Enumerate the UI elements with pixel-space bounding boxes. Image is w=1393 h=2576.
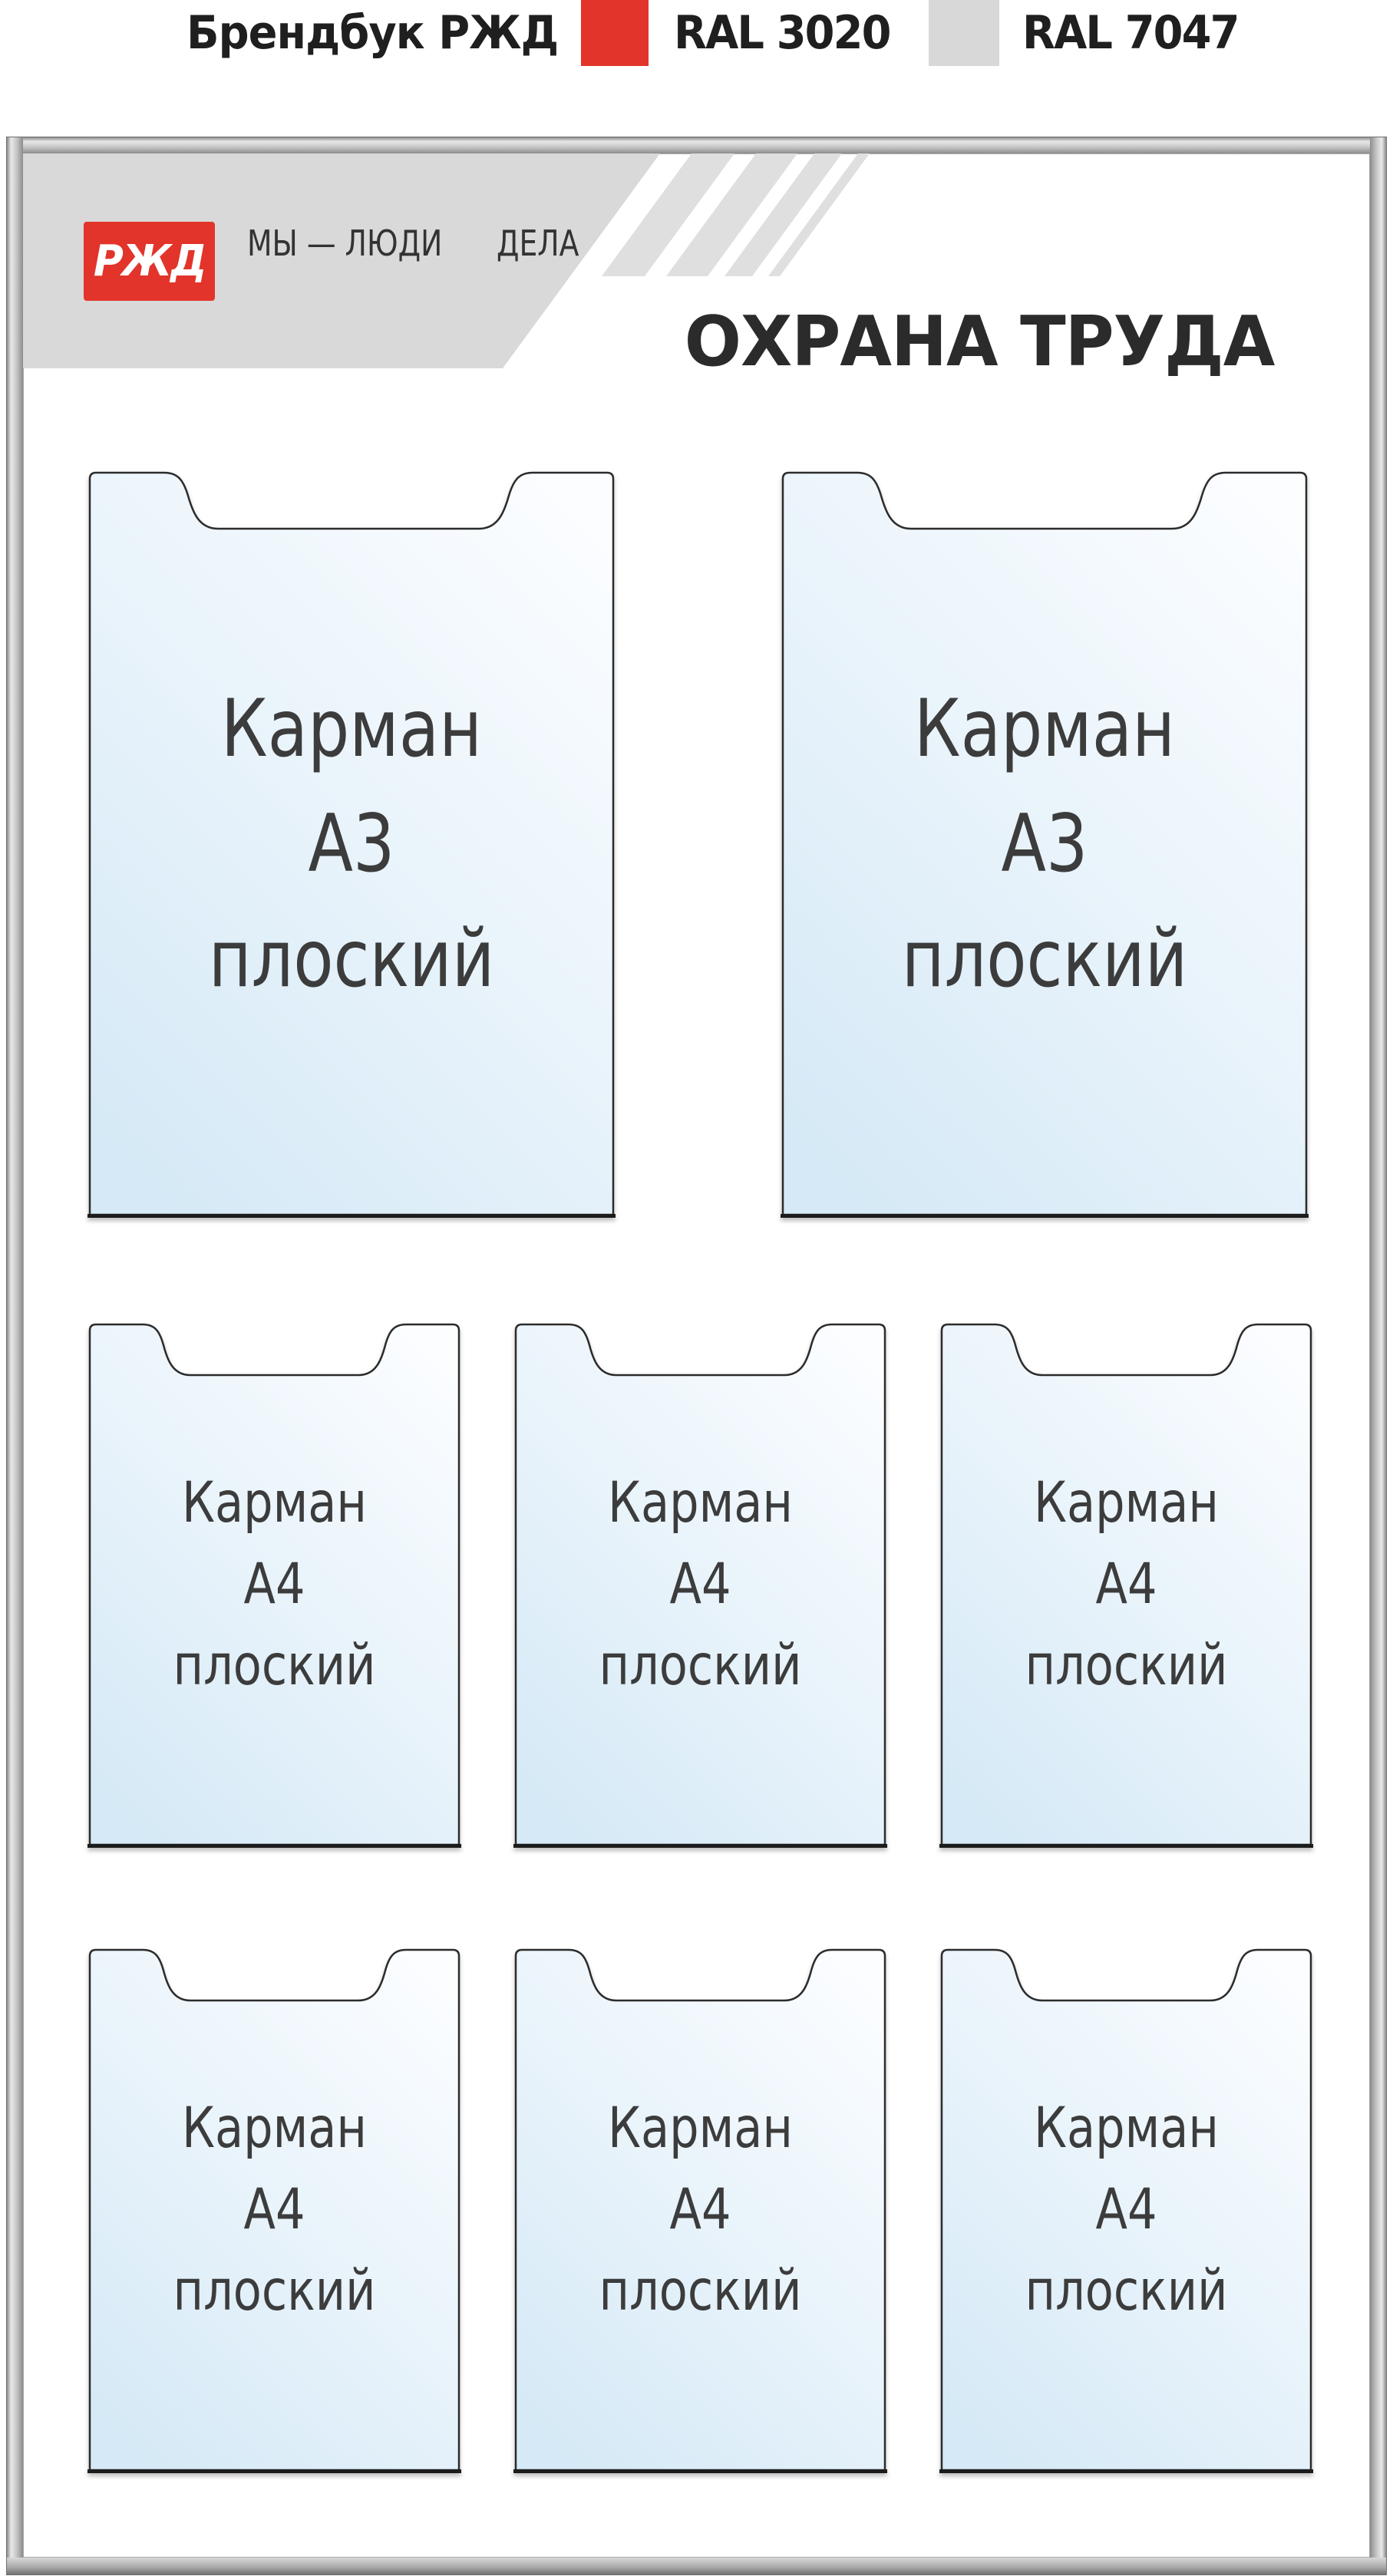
pocket-a4-label-line2: А4: [119, 1544, 429, 1625]
pocket-a3-1: Карман А3 плоский: [87, 470, 616, 1218]
frame-left-edge: [6, 137, 23, 2575]
pocket-a4-label-line2: А4: [119, 2169, 429, 2251]
rzd-logo: РЖД: [84, 222, 215, 301]
pocket-a4-label-line3: плоский: [119, 1625, 429, 1707]
slogan-line-1: МЫ — ЛЮДИ: [247, 225, 442, 262]
pocket-a3-label-line1: Карман: [825, 671, 1263, 787]
pocket-a4-label: Карман А4 плоский: [513, 2088, 887, 2332]
slogan: МЫ — ЛЮДИ ДЕЛА: [247, 225, 597, 262]
slogan-line-2: ДЕЛА: [497, 225, 579, 262]
pocket-a4-label: Карман А4 плоский: [939, 1463, 1313, 1707]
pocket-a4-label-line1: Карман: [545, 2088, 855, 2169]
pocket-a4-label-line3: плоский: [119, 2251, 429, 2332]
pocket-a3-2: Карман А3 плоский: [781, 470, 1309, 1218]
pocket-a4-label-line2: А4: [545, 2169, 855, 2251]
pocket-a4-3: Карман А4 плоский: [939, 1321, 1313, 1848]
pocket-a4-label-line1: Карман: [971, 1463, 1281, 1544]
rzd-logo-glyph: РЖД: [94, 240, 206, 283]
pocket-a3-label-line3: плоский: [132, 902, 570, 1017]
pocket-a4-label-line3: плоский: [545, 1625, 855, 1707]
pocket-a4-label-line1: Карман: [545, 1463, 855, 1544]
pocket-a4-4: Карман А4 плоский: [87, 1947, 461, 2473]
pocket-a4-label: Карман А4 плоский: [87, 2088, 461, 2332]
pocket-a4-label: Карман А4 плоский: [939, 2088, 1313, 2332]
pocket-a4-label: Карман А4 плоский: [513, 1463, 887, 1707]
board-title: ОХРАНА ТРУДА: [684, 307, 1274, 378]
pocket-a4-label-line3: плоский: [971, 1625, 1281, 1707]
caption-brand-title: Брендбук РЖД: [187, 0, 558, 66]
pocket-a3-label-line2: А3: [132, 787, 570, 902]
ral-7047-label: RAL 7047: [1022, 0, 1239, 66]
ral-7047-swatch: [929, 0, 999, 66]
pocket-a4-6: Карман А4 плоский: [939, 1947, 1313, 2473]
brandbook-sheet: Брендбук РЖД RAL 3020 RAL 7047 РЖД МЫ — …: [0, 0, 1393, 2576]
pocket-a4-label-line1: Карман: [119, 2088, 429, 2169]
pocket-a4-label-line2: А4: [971, 1544, 1281, 1625]
pocket-a4-5: Карман А4 плоский: [513, 1947, 887, 2473]
ral-3020-swatch: [581, 0, 649, 66]
frame-right-edge: [1370, 137, 1387, 2575]
frame-top-edge: [6, 137, 1387, 153]
pocket-a3-label: Карман А3 плоский: [87, 671, 616, 1017]
pocket-a4-label-line3: плоский: [971, 2251, 1281, 2332]
pocket-a4-1: Карман А4 плоский: [87, 1321, 461, 1848]
pocket-a3-label: Карман А3 плоский: [781, 671, 1309, 1017]
pocket-a4-label-line1: Карман: [971, 2088, 1281, 2169]
pocket-a3-label-line1: Карман: [132, 671, 570, 787]
pocket-a3-label-line3: плоский: [825, 902, 1263, 1017]
pocket-a4-label-line3: плоский: [545, 2251, 855, 2332]
pocket-a4-label: Карман А4 плоский: [87, 1463, 461, 1707]
pocket-a4-label-line2: А4: [545, 1544, 855, 1625]
frame-bottom-edge: [6, 2558, 1387, 2575]
pocket-a4-label-line1: Карман: [119, 1463, 429, 1544]
pocket-a4-2: Карман А4 плоский: [513, 1321, 887, 1848]
pocket-a3-label-line2: А3: [825, 787, 1263, 902]
ral-3020-label: RAL 3020: [674, 0, 890, 66]
pocket-a4-label-line2: А4: [971, 2169, 1281, 2251]
